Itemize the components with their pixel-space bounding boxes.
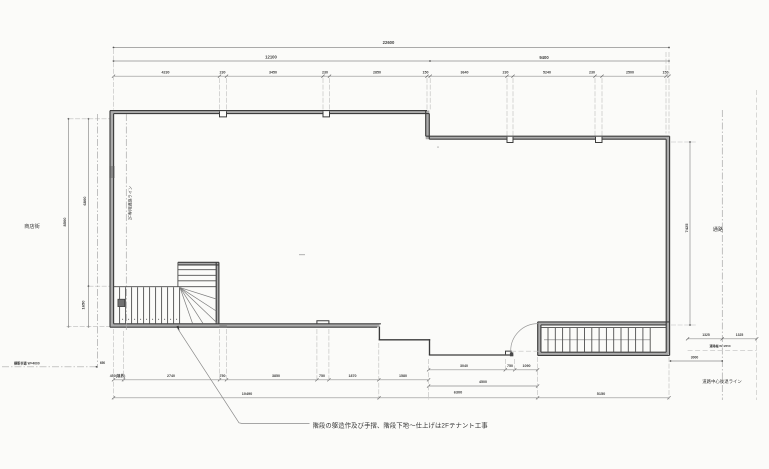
svg-text:22600: 22600 xyxy=(383,40,395,45)
svg-text:8500: 8500 xyxy=(62,217,67,227)
svg-text:1325: 1325 xyxy=(736,333,744,337)
svg-text:3850: 3850 xyxy=(272,374,280,378)
svg-text:1325: 1325 xyxy=(702,333,710,337)
svg-text:2500: 2500 xyxy=(626,70,634,74)
svg-text:3450: 3450 xyxy=(269,70,277,74)
svg-text:230: 230 xyxy=(220,70,226,74)
svg-text:1870: 1870 xyxy=(349,374,357,378)
svg-text:750: 750 xyxy=(507,364,513,368)
svg-text:4230: 4230 xyxy=(162,70,170,74)
svg-text:1650: 1650 xyxy=(81,300,86,310)
svg-text:4500: 4500 xyxy=(479,380,487,384)
svg-text:階段の躯造作及び手摺、階段下地〜仕上げは2Fテナント工事: 階段の躯造作及び手摺、階段下地〜仕上げは2Fテナント工事 xyxy=(313,420,489,429)
svg-text:1090: 1090 xyxy=(523,364,531,368)
svg-text:3640: 3640 xyxy=(461,70,469,74)
svg-text:10490: 10490 xyxy=(242,392,253,396)
svg-text:750: 750 xyxy=(220,374,226,378)
svg-text:6300: 6300 xyxy=(454,391,462,395)
svg-text:2740: 2740 xyxy=(167,374,175,378)
svg-text:6800: 6800 xyxy=(82,196,87,206)
svg-text:道路中心後退ライン: 道路中心後退ライン xyxy=(702,378,742,385)
svg-text:230: 230 xyxy=(322,70,328,74)
svg-text:12100: 12100 xyxy=(265,55,277,60)
svg-text:商店街: 商店街 xyxy=(24,222,40,230)
svg-text:5150: 5150 xyxy=(597,392,605,396)
svg-text:道路幅 W=2650: 道路幅 W=2650 xyxy=(709,343,730,348)
svg-text:9400: 9400 xyxy=(539,55,549,60)
svg-text:230: 230 xyxy=(503,70,509,74)
svg-text:3000: 3000 xyxy=(691,356,699,360)
svg-text:3040: 3040 xyxy=(460,364,468,368)
svg-text:750: 750 xyxy=(319,374,325,378)
svg-text:1580: 1580 xyxy=(399,374,407,378)
svg-text:150: 150 xyxy=(663,70,669,74)
svg-text:7425: 7425 xyxy=(684,223,689,233)
svg-text:2F専用通路ライン: 2F専用通路ライン xyxy=(127,186,134,220)
svg-text:2850: 2850 xyxy=(373,70,381,74)
svg-text:150: 150 xyxy=(423,70,429,74)
svg-text:650: 650 xyxy=(100,361,106,365)
svg-text:横断歩道 W=4000: 横断歩道 W=4000 xyxy=(14,361,40,366)
svg-text:5240: 5240 xyxy=(543,70,551,74)
svg-text:230: 230 xyxy=(589,70,595,74)
